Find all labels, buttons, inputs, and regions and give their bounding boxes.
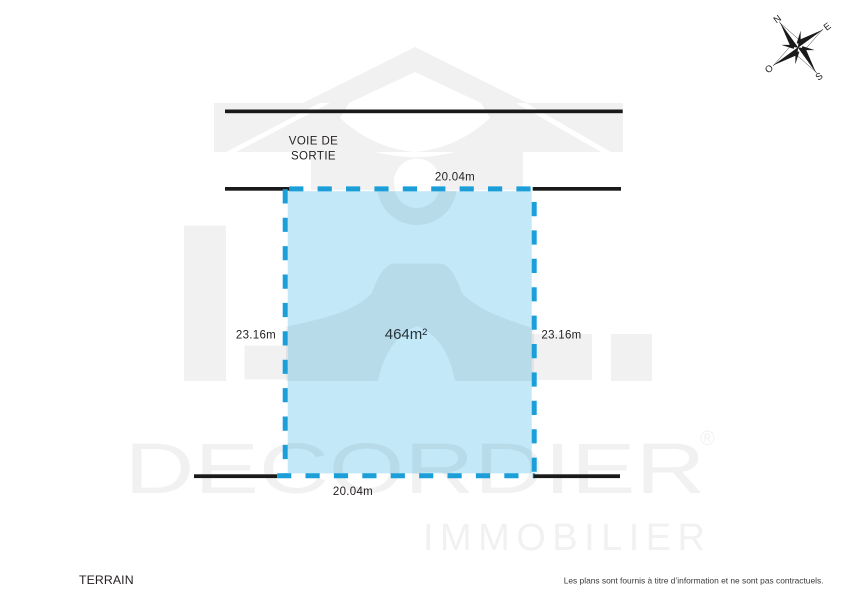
svg-text:464m²: 464m² <box>385 326 428 343</box>
svg-text:23.16m: 23.16m <box>541 329 581 341</box>
svg-text:20.04m: 20.04m <box>435 172 475 184</box>
svg-text:®: ® <box>700 428 715 450</box>
svg-text:23.16m: 23.16m <box>236 329 276 341</box>
svg-text:VOIE DE: VOIE DE <box>289 136 338 148</box>
svg-text:Les plans sont fournis à titre: Les plans sont fournis à titre d’informa… <box>564 576 824 586</box>
svg-text:20.04m: 20.04m <box>333 486 373 498</box>
svg-text:TERRAIN: TERRAIN <box>79 573 134 587</box>
svg-text:SORTIE: SORTIE <box>291 150 336 162</box>
svg-text:DECORDIER: DECORDIER <box>125 430 706 509</box>
svg-text:IMMOBILIER: IMMOBILIER <box>423 517 705 559</box>
